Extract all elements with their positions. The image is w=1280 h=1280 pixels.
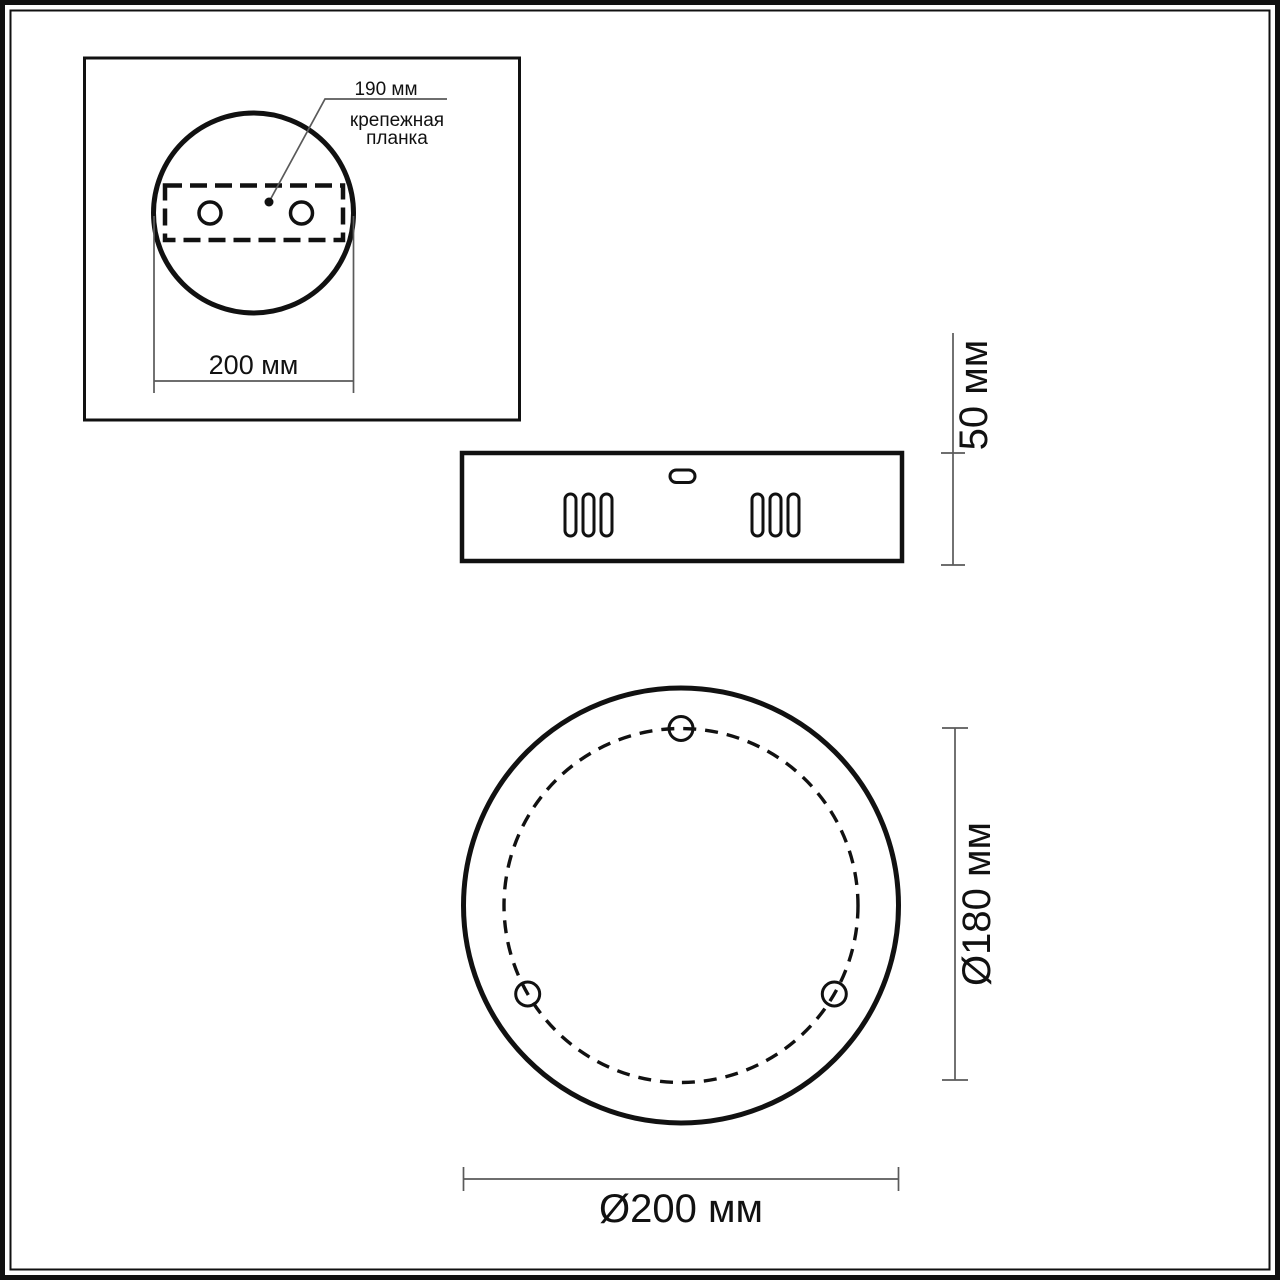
technical-drawing-canvas: 190 мм крепежная планка 200 мм 50 мм (0, 0, 1280, 1280)
bracket-length-label: 190 мм (354, 79, 417, 100)
paper-background (0, 0, 1280, 1280)
bracket-caption-line2: планка (366, 128, 428, 149)
leader-dot (265, 198, 274, 207)
side-height-label: 50 мм (952, 340, 996, 451)
bolt-circle-diameter-label: Ø180 мм (955, 822, 999, 986)
inset-width-label: 200 мм (209, 350, 299, 380)
outer-diameter-label: Ø200 мм (599, 1187, 763, 1231)
